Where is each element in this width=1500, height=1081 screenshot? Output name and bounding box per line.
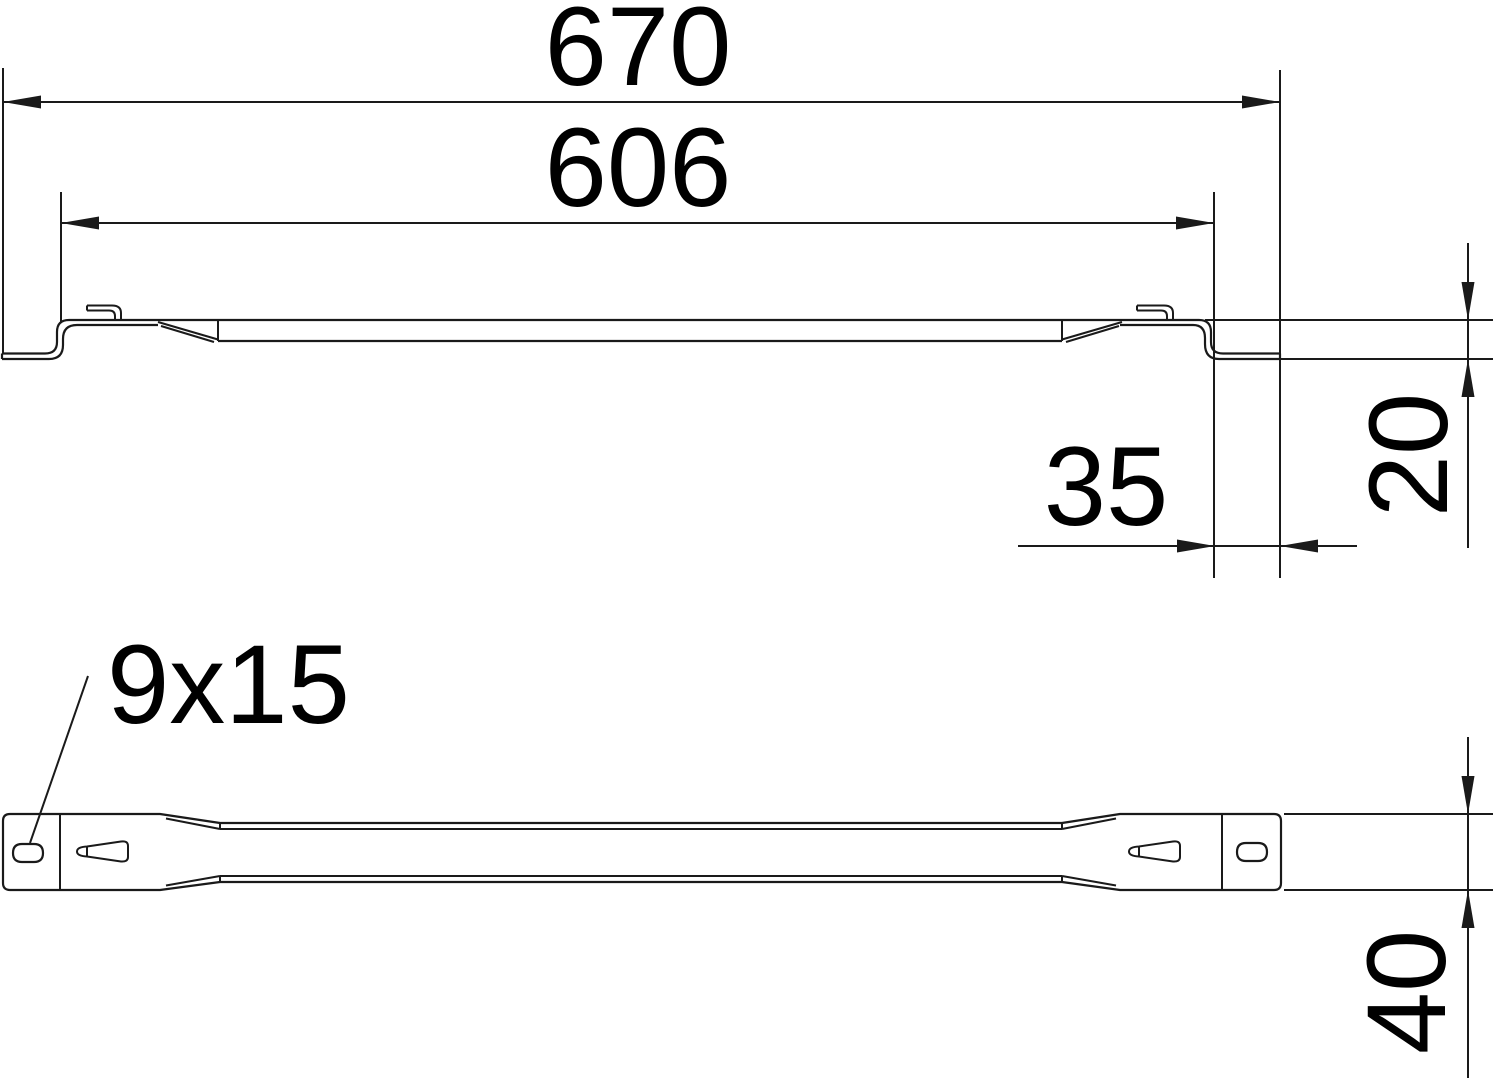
top-view-right-taper-inner-upper xyxy=(1062,819,1116,830)
arrowhead-606-left xyxy=(61,217,99,230)
side-view-right-taper-lower xyxy=(1066,326,1119,342)
top-view-left-oblong-slot xyxy=(13,844,43,862)
drawing-canvas: 670 606 35 20 40 9x15 xyxy=(0,0,1500,1081)
top-view-left-taper-inner-upper xyxy=(166,819,220,830)
arrowhead-606-right xyxy=(1176,217,1214,230)
top-view-right-oblong-slot xyxy=(1237,843,1267,861)
arrowhead-40-bottom xyxy=(1462,890,1475,928)
dimension-rail-width: 40 xyxy=(1284,737,1493,1078)
dimension-end-tab-length: 35 xyxy=(1018,424,1357,553)
side-view-left-taper-lower xyxy=(161,326,214,342)
dim-35-label: 35 xyxy=(1044,424,1169,549)
technical-drawing: 670 606 35 20 40 9x15 xyxy=(0,0,1500,1081)
top-view-left-keyhole-slot xyxy=(77,841,128,861)
dim-20-label: 20 xyxy=(1346,393,1471,518)
side-view-left-taper-upper xyxy=(158,322,218,340)
top-view xyxy=(3,814,1281,890)
arrowhead-35-left xyxy=(1177,540,1215,553)
arrowhead-20-bottom xyxy=(1462,359,1475,397)
dim-606-label: 606 xyxy=(545,105,732,230)
slot-size-label: 9x15 xyxy=(107,622,350,747)
arrowhead-20-top xyxy=(1462,282,1475,320)
arrowhead-35-right xyxy=(1280,540,1318,553)
side-view-right-hook-tab-inner xyxy=(1137,311,1167,321)
side-view xyxy=(2,306,1280,360)
arrowhead-40-top xyxy=(1462,776,1475,814)
dim-40-label: 40 xyxy=(1344,930,1469,1055)
side-view-right-taper-upper xyxy=(1062,322,1122,340)
dim-670-label: 670 xyxy=(545,0,732,109)
dimension-end-offset-height: 20 xyxy=(1205,243,1493,548)
slot-size-callout: 9x15 xyxy=(30,622,350,843)
arrowhead-670-left xyxy=(3,96,41,109)
top-view-outline xyxy=(3,814,1281,890)
top-view-right-keyhole-slot xyxy=(1129,841,1180,861)
side-view-left-hook-tab-inner xyxy=(87,311,115,321)
arrowhead-670-right xyxy=(1242,96,1280,109)
